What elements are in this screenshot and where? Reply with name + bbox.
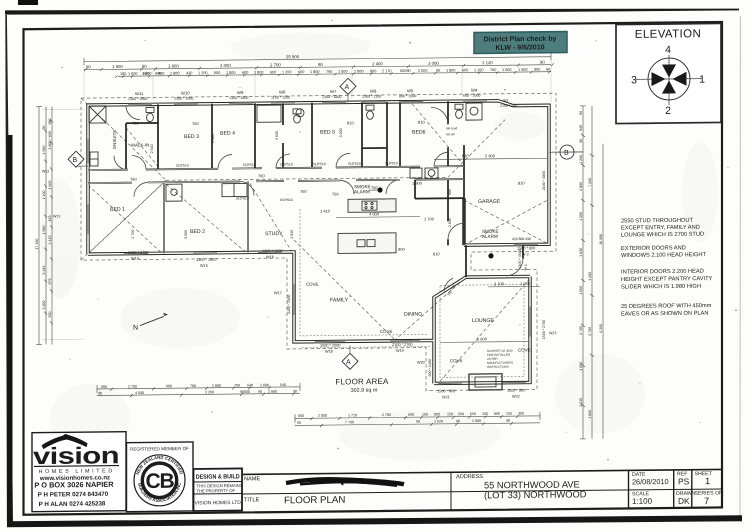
svg-text:1 915: 1 915 (290, 230, 294, 239)
svg-text:BED 3: BED 3 (184, 134, 199, 140)
svg-text:1 800: 1 800 (168, 63, 179, 68)
svg-text:90: 90 (416, 420, 420, 424)
svg-text:1 900: 1 900 (472, 419, 481, 423)
svg-text:90: 90 (579, 111, 583, 115)
svg-text:1300 * 1800: 1300 * 1800 (322, 95, 341, 99)
svg-text:1300 * 1800: 1300 * 1800 (128, 97, 147, 101)
svg-text:1 800: 1 800 (226, 71, 236, 75)
svg-text:350: 350 (518, 412, 524, 416)
svg-text:W8: W8 (279, 90, 286, 95)
svg-text:2100 * 860: 2100 * 860 (500, 104, 517, 108)
svg-text:150: 150 (506, 412, 512, 416)
svg-text:1300 * 1800: 1300 * 1800 (174, 96, 193, 100)
svg-text:tall cupd: tall cupd (446, 126, 458, 130)
svg-text:16 990: 16 990 (599, 234, 603, 245)
svg-text:610*610: 610*610 (236, 196, 249, 200)
svg-text:540: 540 (247, 383, 253, 387)
svg-text:26/08/2010: 26/08/2010 (632, 477, 669, 486)
svg-text:600: 600 (270, 70, 276, 74)
svg-text:90: 90 (318, 62, 323, 67)
svg-text:3 000: 3 000 (184, 230, 188, 239)
svg-text:1 800: 1 800 (142, 72, 152, 76)
svg-text:3 300: 3 300 (42, 301, 46, 310)
svg-text:6 200: 6 200 (599, 324, 603, 333)
svg-text:900: 900 (101, 385, 107, 389)
svg-text:BED6: BED6 (412, 130, 426, 136)
svg-text:800: 800 (494, 412, 500, 416)
svg-text:GARAGE: GARAGE (478, 199, 501, 205)
svg-text:463: 463 (48, 215, 52, 221)
svg-text:302.9 sq m: 302.9 sq m (351, 388, 378, 394)
svg-text:BED 5: BED 5 (320, 129, 335, 135)
svg-text:1500 * 800: 1500 * 800 (517, 246, 535, 250)
svg-text:510*510: 510*510 (385, 161, 398, 165)
svg-text:150: 150 (422, 413, 428, 417)
svg-text:90: 90 (456, 419, 460, 423)
svg-text:DINING: DINING (404, 312, 422, 318)
svg-text:W15: W15 (200, 264, 208, 268)
svg-text:180: 180 (120, 72, 126, 76)
svg-text:2 680: 2 680 (268, 390, 277, 394)
svg-text:7: 7 (704, 496, 709, 506)
svg-text:4 800: 4 800 (579, 182, 583, 191)
svg-text:EXTERIOR DOORS AND: EXTERIOR DOORS AND (621, 245, 686, 252)
svg-text:WALK-IN: WALK-IN (131, 142, 149, 147)
svg-text:W19: W19 (396, 349, 404, 353)
svg-text:790: 790 (326, 70, 332, 74)
svg-text:COVE: COVE (380, 329, 393, 334)
svg-text:1 600: 1 600 (260, 383, 269, 387)
svg-text:TITLE: TITLE (244, 497, 259, 503)
svg-text:BED 2: BED 2 (190, 229, 205, 235)
svg-text:810: 810 (347, 120, 354, 125)
svg-text:600: 600 (462, 68, 468, 72)
svg-text:2 700: 2 700 (131, 230, 135, 239)
svg-text:1300 * 1100: 1300 * 1100 (362, 95, 381, 99)
svg-text:7 700: 7 700 (345, 420, 354, 424)
svg-text:W20: W20 (417, 361, 425, 365)
svg-text:3 120: 3 120 (482, 60, 493, 65)
svg-text:90: 90 (506, 419, 510, 423)
svg-text:510*510: 510*510 (176, 164, 189, 168)
svg-text:1 200: 1 200 (198, 71, 208, 75)
svg-text:ALARM: ALARM (482, 234, 498, 239)
svg-text:810: 810 (418, 120, 425, 125)
svg-text:25 900: 25 900 (286, 54, 300, 59)
svg-text:980: 980 (48, 118, 52, 124)
svg-text:90: 90 (546, 68, 550, 72)
svg-text:1 000: 1 000 (338, 70, 348, 74)
svg-text:5 345: 5 345 (42, 266, 46, 275)
svg-text:BED 4: BED 4 (220, 131, 235, 137)
svg-text:550: 550 (458, 412, 464, 416)
svg-text:760: 760 (258, 173, 265, 178)
svg-text:510*510: 510*510 (348, 162, 361, 166)
svg-text:420 800 490: 420 800 490 (512, 237, 531, 241)
svg-text:hot wtr: hot wtr (446, 132, 455, 136)
svg-text:900: 900 (448, 189, 452, 195)
svg-text:90: 90 (42, 126, 46, 130)
svg-text:760: 760 (130, 177, 137, 182)
svg-text:STUDY: STUDY (265, 231, 283, 237)
svg-text:690: 690 (408, 413, 414, 417)
svg-text:3 600: 3 600 (211, 134, 215, 143)
svg-text:2100 * 2700: 2100 * 2700 (128, 250, 148, 254)
svg-text:1 650: 1 650 (579, 286, 583, 295)
svg-text:1500 * 2000: 1500 * 2000 (320, 343, 340, 347)
svg-text:1 000: 1 000 (502, 68, 512, 72)
svg-text:1 600: 1 600 (48, 180, 52, 189)
svg-text:1 100: 1 100 (474, 68, 484, 72)
svg-text:W7: W7 (330, 89, 337, 94)
svg-text:17 190: 17 190 (35, 239, 39, 250)
svg-text:1500 * 800: 1500 * 800 (437, 389, 455, 393)
svg-text:1 620: 1 620 (434, 419, 443, 423)
svg-text:W18: W18 (325, 350, 333, 354)
svg-text:600 * 1000: 600 * 1000 (463, 93, 480, 97)
svg-text:W10: W10 (181, 91, 190, 96)
svg-text:1: 1 (705, 476, 710, 486)
svg-text:25 DEGREES ROOF WITH 450mm: 25 DEGREES ROOF WITH 450mm (621, 303, 712, 310)
svg-text:NAME: NAME (244, 476, 260, 482)
svg-text:700: 700 (190, 384, 196, 388)
svg-text:540: 540 (280, 383, 286, 387)
svg-text:600: 600 (298, 70, 304, 74)
svg-text:3 600: 3 600 (275, 131, 279, 140)
svg-text:DK: DK (678, 496, 690, 506)
svg-text:LOUNGE WHICH IS 2700 STUD: LOUNGE WHICH IS 2700 STUD (621, 232, 704, 239)
svg-text:1 710: 1 710 (348, 413, 357, 417)
svg-text:1 800: 1 800 (354, 69, 364, 73)
svg-text:2 700: 2 700 (579, 326, 583, 335)
svg-text:W 1: W 1 (524, 264, 528, 270)
svg-text:W6: W6 (370, 89, 377, 94)
svg-text:1 410: 1 410 (320, 209, 331, 214)
svg-text:1 400: 1 400 (42, 191, 46, 200)
svg-text:INTERIOR DOORS 2.200 HEAD: INTERIOR DOORS 2.200 HEAD (621, 269, 704, 276)
svg-text:W17: W17 (274, 291, 282, 295)
svg-text:P H PETER 0274 843470: P H PETER 0274 843470 (38, 491, 109, 499)
svg-text:A: A (346, 359, 351, 366)
svg-text:1: 1 (699, 74, 705, 86)
svg-text:2 700: 2 700 (128, 385, 137, 389)
svg-text:ALARM: ALARM (354, 189, 370, 194)
svg-text:2 000: 2 000 (418, 69, 428, 73)
svg-text:1 800: 1 800 (170, 71, 180, 75)
svg-text:1 200: 1 200 (588, 272, 592, 281)
svg-text:760: 760 (332, 191, 339, 196)
svg-text:1 610: 1 610 (579, 398, 583, 407)
svg-text:1 030: 1 030 (520, 281, 531, 286)
svg-text:SLIDER WHICH IS 1.980 HIGH: SLIDER WHICH IS 1.980 HIGH (621, 284, 701, 291)
svg-text:1 800: 1 800 (446, 69, 456, 73)
svg-text:1 630: 1 630 (579, 248, 583, 257)
svg-text:1300 * 1800: 1300 * 1800 (229, 96, 248, 100)
svg-text:900: 900 (398, 247, 405, 252)
svg-text:800: 800 (370, 69, 376, 73)
svg-text:1 200: 1 200 (579, 212, 583, 221)
svg-text:2 840: 2 840 (448, 218, 452, 227)
svg-text:2 170: 2 170 (382, 69, 392, 73)
svg-text:810: 810 (518, 180, 525, 185)
svg-text:REGISTERED MEMBER OF: REGISTERED MEMBER OF (130, 446, 189, 452)
svg-text:2 100: 2 100 (494, 281, 505, 286)
svg-text:940: 940 (579, 125, 583, 131)
svg-text:90: 90 (297, 421, 301, 425)
svg-text:60090: 60090 (400, 69, 411, 73)
svg-text:90: 90 (293, 389, 297, 393)
svg-text:3 600: 3 600 (339, 128, 343, 137)
svg-text:District Plan check by: District Plan check by (484, 36, 557, 44)
svg-text:1300 * 1800: 1300 * 1800 (196, 258, 216, 262)
svg-text:FLOOR PLAN: FLOOR PLAN (284, 495, 345, 507)
svg-text:2 000: 2 000 (318, 414, 327, 418)
svg-text:N: N (133, 325, 138, 332)
svg-text:1 500: 1 500 (518, 68, 528, 72)
svg-text:W 2: W 2 (522, 252, 529, 256)
svg-text:CB: CB (146, 470, 175, 493)
svg-text:5 900: 5 900 (485, 153, 496, 158)
svg-text:1 800: 1 800 (310, 70, 320, 74)
svg-text:2 700: 2 700 (382, 413, 391, 417)
svg-text:610*610: 610*610 (280, 198, 293, 202)
svg-text:vision: vision (33, 442, 119, 469)
svg-text:2 540: 2 540 (150, 144, 154, 153)
svg-text:1 000: 1 000 (128, 72, 138, 76)
svg-text:1500 * 2700: 1500 * 2700 (542, 320, 546, 339)
svg-text:550: 550 (470, 412, 476, 416)
svg-text:550: 550 (48, 311, 52, 317)
svg-text:W22: W22 (512, 395, 520, 399)
svg-text:900: 900 (166, 384, 172, 388)
svg-text:W5: W5 (407, 88, 414, 93)
svg-text:1 800 * 600: 1 800 * 600 (48, 131, 52, 149)
svg-text:3 200: 3 200 (205, 390, 214, 394)
svg-text:LOUNGE: LOUNGE (472, 318, 494, 324)
svg-text:760: 760 (300, 189, 307, 194)
svg-text:1500 * 800: 1500 * 800 (507, 388, 525, 392)
svg-text:510*510: 510*510 (313, 162, 326, 166)
svg-text:COVE: COVE (450, 358, 463, 363)
svg-text:90: 90 (258, 390, 262, 394)
svg-text:P H ALAN 0274 425238: P H ALAN 0274 425238 (39, 500, 106, 508)
svg-text:2550 STUD THROUGHOUT: 2550 STUD THROUGHOUT (621, 218, 693, 225)
svg-text:2 700: 2 700 (270, 62, 281, 67)
svg-text:1 800: 1 800 (212, 384, 221, 388)
svg-text:ELEVATION: ELEVATION (635, 28, 701, 41)
svg-text:W13: W13 (53, 214, 60, 218)
svg-text:1 800: 1 800 (254, 71, 264, 75)
svg-text:600: 600 (242, 71, 248, 75)
svg-text:B: B (564, 150, 569, 157)
svg-text:2 700: 2 700 (588, 327, 592, 336)
svg-text:4 000: 4 000 (369, 212, 380, 217)
svg-text:KLW - 9/6/2010: KLW - 9/6/2010 (495, 44, 544, 52)
svg-text:(LOT 33) NORTHWOOD: (LOT 33) NORTHWOOD (484, 489, 587, 500)
svg-text:1 200: 1 200 (579, 155, 583, 164)
svg-text:ADDRESS: ADDRESS (456, 474, 483, 480)
svg-text:4 580: 4 580 (42, 146, 46, 155)
svg-text:1 200: 1 200 (282, 70, 292, 74)
svg-text:COVE: COVE (518, 347, 531, 352)
svg-text:BED 1: BED 1 (110, 207, 125, 213)
svg-text:1:100: 1:100 (632, 497, 653, 506)
svg-text:150: 150 (447, 412, 453, 416)
svg-text:500 * 1400: 500 * 1400 (428, 359, 432, 376)
svg-text:1 900: 1 900 (112, 64, 123, 69)
svg-text:600: 600 (214, 71, 220, 75)
svg-text:COVE: COVE (306, 282, 319, 287)
svg-text:90: 90 (86, 64, 91, 69)
svg-text:2100 * 3300: 2100 * 3300 (287, 295, 291, 314)
svg-text:W12: W12 (42, 169, 49, 173)
svg-text:3 000: 3 000 (428, 61, 439, 66)
svg-text:90600: 90600 (240, 390, 250, 394)
svg-text:3 000: 3 000 (220, 63, 231, 68)
svg-text:90: 90 (98, 391, 102, 395)
svg-text:510*510: 510*510 (243, 163, 256, 167)
svg-text:4 500: 4 500 (135, 391, 144, 395)
svg-text:FAMILY: FAMILY (330, 297, 349, 303)
svg-text:1 800: 1 800 (588, 410, 592, 419)
svg-text:1190 * 1200: 1190 * 1200 (271, 95, 290, 99)
svg-text:THE PROPERTY OF: THE PROPERTY OF (197, 488, 236, 493)
svg-text:W11: W11 (135, 91, 144, 96)
svg-text:1 650: 1 650 (579, 362, 583, 371)
svg-text:760: 760 (192, 121, 199, 126)
svg-text:W16: W16 (266, 255, 274, 259)
svg-text:B: B (73, 157, 78, 164)
svg-text:700: 700 (234, 383, 240, 387)
svg-text:90: 90 (436, 69, 440, 73)
svg-text:90: 90 (142, 64, 147, 69)
svg-text:790: 790 (490, 68, 496, 72)
svg-text:430: 430 (186, 71, 192, 75)
svg-text:760: 760 (132, 121, 139, 126)
svg-text:2100 * 2700: 2100 * 2700 (392, 343, 412, 347)
svg-text:90: 90 (540, 60, 545, 65)
svg-text:810: 810 (433, 251, 440, 256)
svg-text:EXCEPT ENTRY, FAMILY AND: EXCEPT ENTRY, FAMILY AND (621, 225, 700, 232)
svg-text:450: 450 (158, 72, 164, 76)
svg-text:600: 600 (298, 414, 304, 418)
svg-text:W3: W3 (503, 99, 508, 103)
svg-text:PS: PS (678, 476, 690, 486)
svg-text:4: 4 (665, 44, 671, 56)
svg-text:W23: W23 (549, 331, 556, 335)
svg-text:W21: W21 (442, 395, 450, 399)
svg-text:1 580: 1 580 (42, 226, 46, 235)
svg-text:1300 * 1600: 1300 * 1600 (262, 249, 282, 253)
svg-text:HEIGHT EXCEPT PANTRY CAVITY: HEIGHT EXCEPT PANTRY CAVITY (621, 276, 713, 283)
svg-text:510*510: 510*510 (280, 162, 293, 166)
svg-text:EAVES OR AS SHOWN ON PLAN: EAVES OR AS SHOWN ON PLAN (621, 311, 708, 318)
svg-text:FLOOR AREA: FLOOR AREA (335, 377, 389, 387)
svg-text:W4: W4 (471, 87, 478, 92)
svg-text:2 415: 2 415 (48, 235, 52, 244)
svg-text:A: A (345, 84, 350, 91)
svg-text:760: 760 (371, 185, 378, 190)
svg-text:5 600: 5 600 (477, 336, 488, 341)
svg-text:P O BOX 3026 NAPIER: P O BOX 3026 NAPIER (34, 480, 114, 490)
svg-text:DESIGN & BUILD: DESIGN & BUILD (196, 473, 240, 480)
svg-text:800: 800 (434, 412, 440, 416)
svg-text:INSTRUCTIONS: INSTRUCTIONS (487, 365, 509, 369)
svg-text:WINDOWS 2.100 HEAD HEIGHT: WINDOWS 2.100 HEAD HEIGHT (621, 252, 707, 259)
svg-text:810: 810 (462, 153, 469, 158)
svg-text:2 400: 2 400 (372, 61, 383, 66)
svg-text:2: 2 (665, 105, 671, 117)
svg-text:1 700: 1 700 (424, 216, 435, 221)
svg-text:800: 800 (534, 68, 540, 72)
svg-text:800 * 1000: 800 * 1000 (399, 94, 416, 98)
svg-text:2100 * 4800: 2100 * 4800 (542, 171, 546, 190)
svg-text:ENSUITE: ENSUITE (112, 130, 117, 149)
svg-text:VISION HOMES LTD: VISION HOMES LTD (195, 500, 242, 506)
svg-text:979: 979 (48, 278, 52, 284)
svg-text:90: 90 (579, 139, 583, 143)
svg-text:W14: W14 (131, 257, 139, 261)
svg-text:1 900: 1 900 (412, 181, 423, 186)
svg-text:W9: W9 (237, 90, 244, 95)
svg-text:150: 150 (482, 412, 488, 416)
svg-text:3: 3 (631, 74, 637, 86)
svg-text:7 200: 7 200 (588, 178, 592, 187)
